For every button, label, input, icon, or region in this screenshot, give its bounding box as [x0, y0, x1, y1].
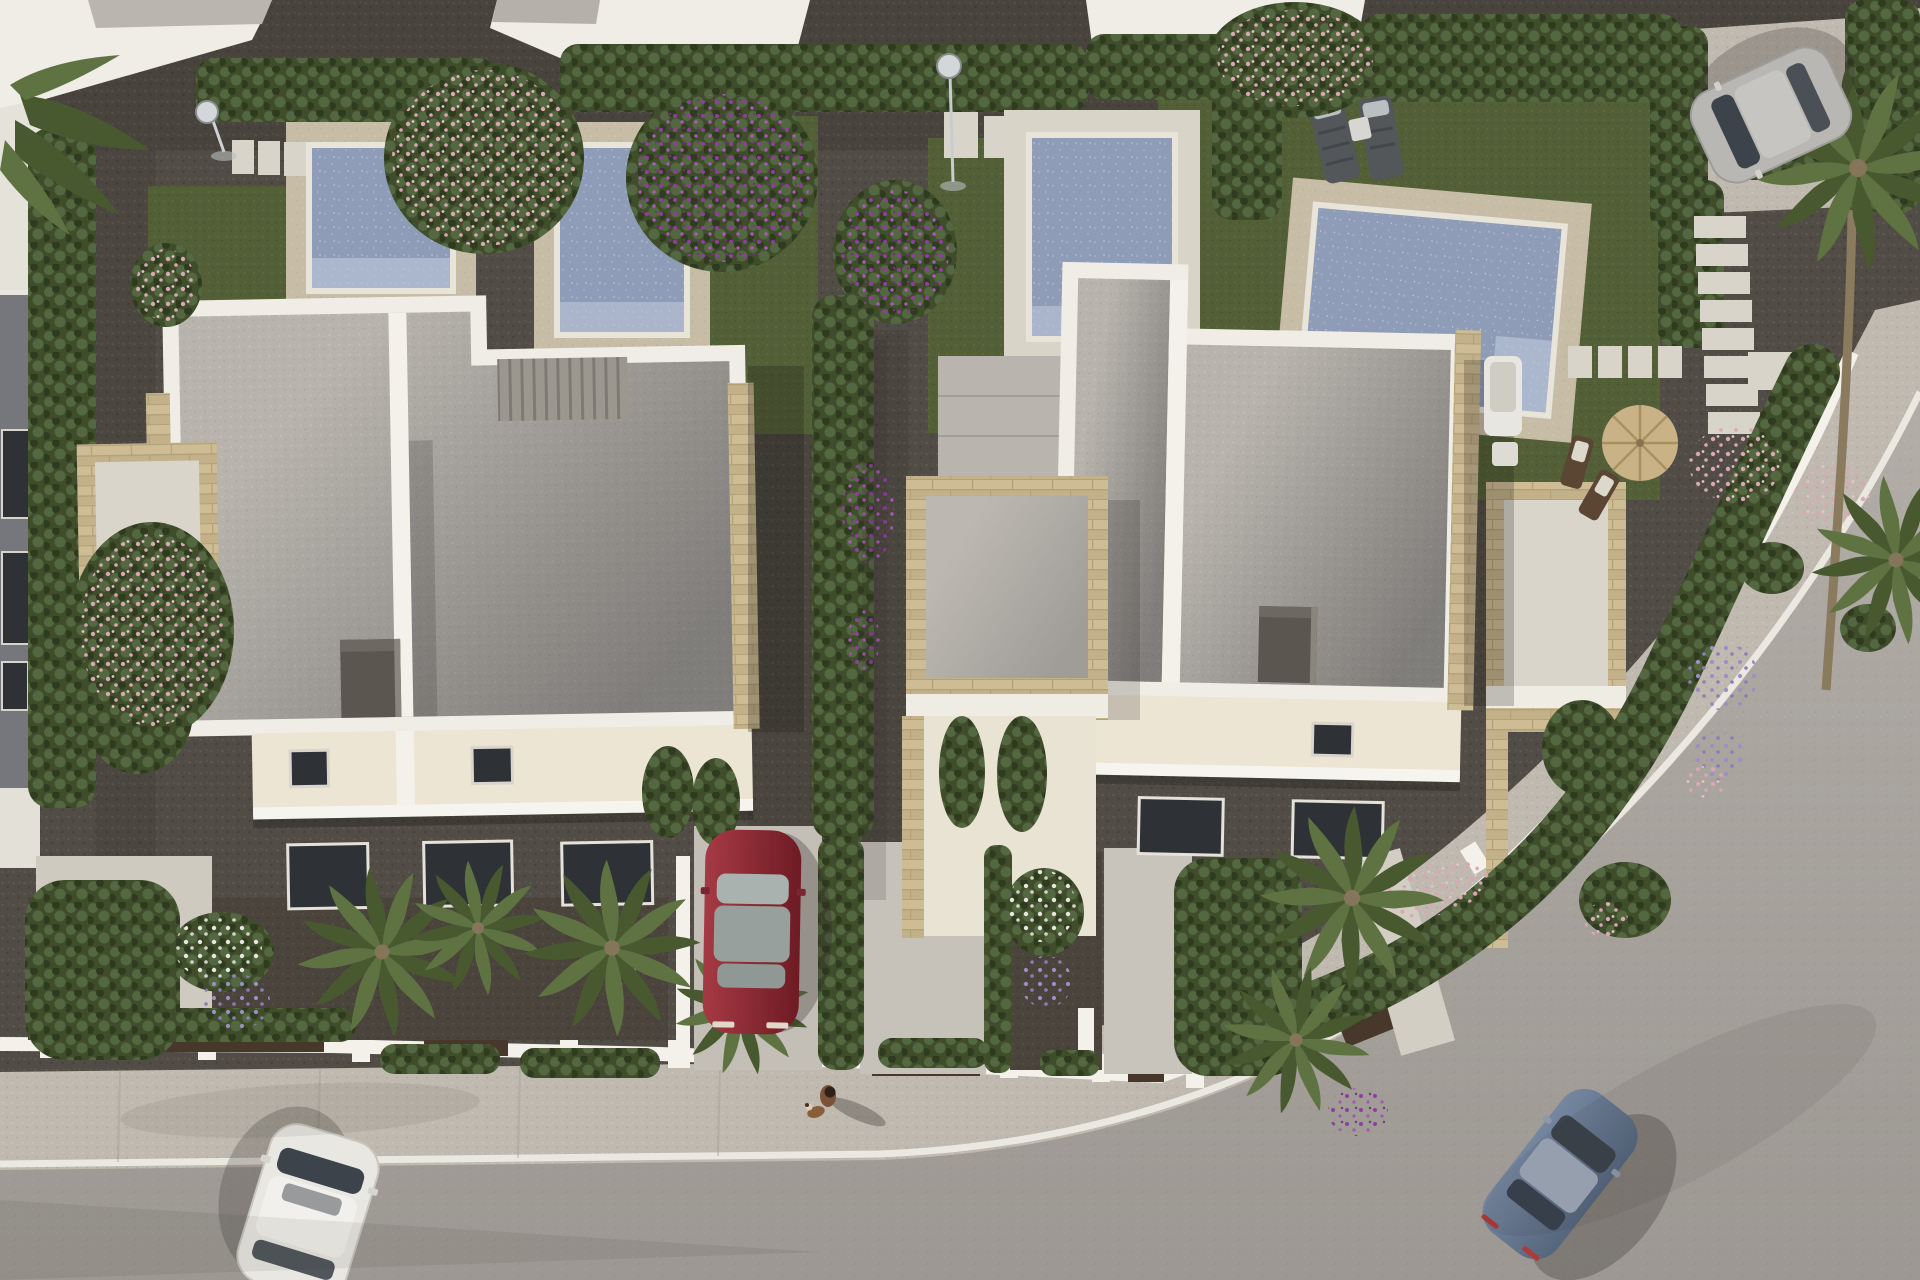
skylight [1312, 723, 1353, 756]
villa-cast-shadow [748, 366, 804, 732]
aerial-render: Top-down architectural visualization: tw… [0, 0, 1920, 1280]
terrace-between [938, 356, 1066, 478]
skylight [472, 747, 513, 784]
pink-tree-large [384, 62, 584, 254]
pink-tree-top [1207, 2, 1383, 118]
hydrangeas-white [174, 916, 262, 980]
red-car [698, 829, 834, 1035]
pink-tree-left [70, 522, 234, 738]
chimney [340, 639, 401, 718]
straw-parasol [1602, 405, 1678, 481]
chimney [1258, 606, 1318, 683]
hydrangeas-violet [202, 974, 270, 1030]
scene-svg: Aerial 3D render of a modern villa devel… [0, 0, 1920, 1280]
skylight [290, 750, 329, 787]
pink-shrub-small [130, 243, 202, 327]
person-head [825, 1087, 836, 1098]
entrance-void [497, 357, 628, 421]
